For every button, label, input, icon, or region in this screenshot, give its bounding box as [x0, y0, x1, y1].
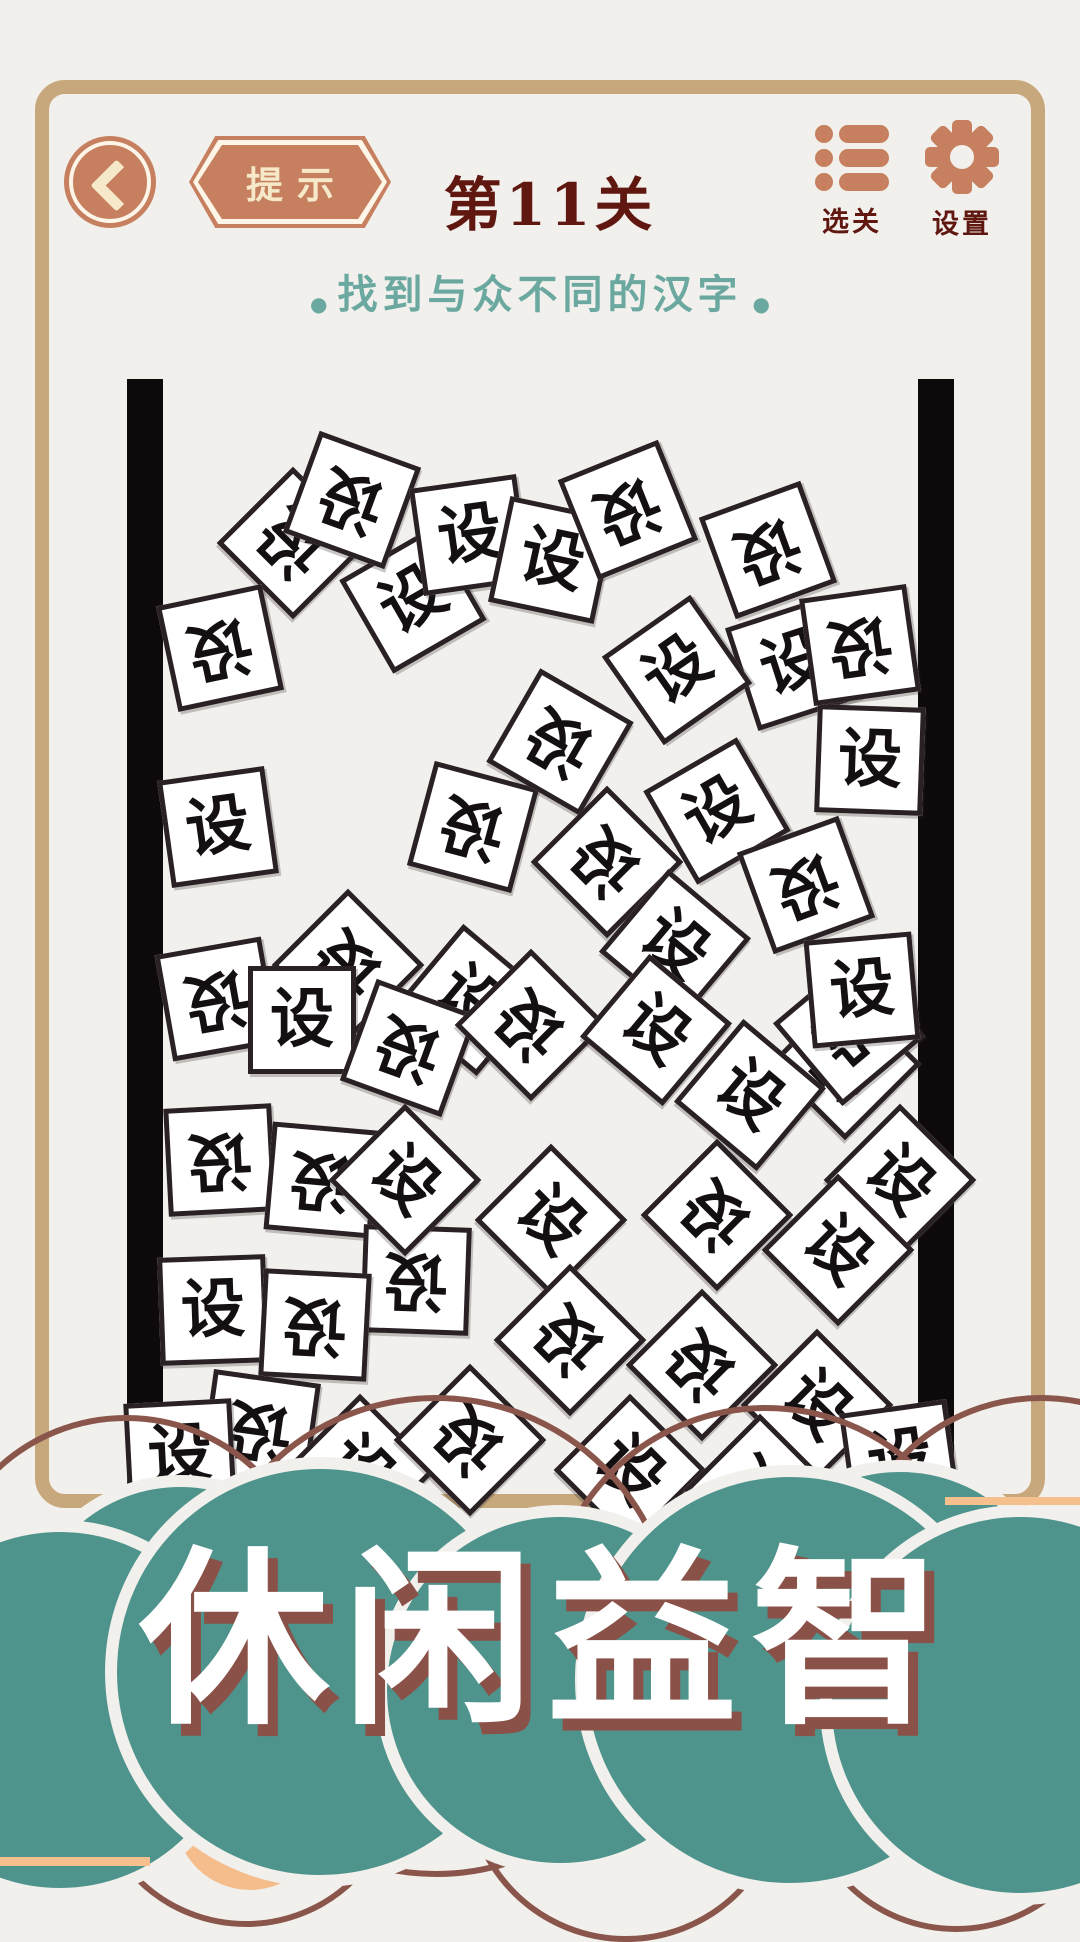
char-tile[interactable]: 设 — [248, 966, 356, 1074]
peach-line-right — [945, 1497, 1080, 1505]
char-tile[interactable]: 设 — [494, 1264, 647, 1417]
banner-title: 休闲益智 — [0, 1542, 1080, 1742]
char-tile[interactable]: 设 — [803, 931, 920, 1048]
tile-character: 设 — [611, 985, 701, 1075]
tile-character: 设 — [793, 1205, 884, 1296]
tile-character: 设 — [516, 698, 603, 785]
tile-character: 设 — [506, 1175, 597, 1266]
tile-character: 设 — [827, 955, 896, 1024]
tile-character: 设 — [368, 1007, 450, 1089]
char-tile[interactable]: 设 — [156, 584, 284, 712]
tile-character: 设 — [311, 459, 393, 541]
tile-character: 设 — [837, 727, 903, 793]
tile-character: 设 — [632, 625, 721, 714]
tile-character: 设 — [360, 1135, 451, 1226]
char-tile[interactable]: 设 — [157, 766, 279, 888]
char-tile[interactable]: 设 — [814, 704, 926, 816]
tile-character: 设 — [434, 499, 506, 571]
tile-character: 设 — [180, 962, 254, 1036]
tile-character: 设 — [383, 1247, 449, 1313]
tile-character: 设 — [765, 844, 847, 926]
tile-character: 设 — [270, 988, 334, 1052]
tile-character: 设 — [586, 468, 669, 551]
tile-character: 设 — [182, 791, 254, 863]
game-screen: { "header": { "hint_label": "提示", "level… — [0, 0, 1080, 1920]
tile-character: 设 — [672, 1170, 763, 1261]
tile-character: 设 — [727, 509, 809, 591]
tile-character: 设 — [562, 817, 653, 908]
tile-character: 设 — [824, 609, 896, 681]
tile-character: 设 — [281, 1291, 348, 1358]
peach-line-bottom-left — [0, 1857, 150, 1866]
tile-character: 设 — [705, 1050, 795, 1140]
tile-character: 设 — [434, 788, 512, 866]
char-tile[interactable]: 设 — [258, 1268, 372, 1382]
tile-character: 设 — [657, 1320, 748, 1411]
tile-character: 设 — [180, 1277, 246, 1343]
char-tile[interactable]: 设 — [799, 584, 921, 706]
tile-character: 设 — [525, 1295, 616, 1386]
tile-character: 设 — [186, 1126, 253, 1193]
char-tile[interactable]: 设 — [157, 1254, 269, 1366]
tile-character: 设 — [182, 610, 258, 686]
char-tile[interactable]: 设 — [475, 1144, 628, 1297]
char-tile[interactable]: 设 — [641, 1139, 794, 1292]
char-tile[interactable]: 设 — [163, 1103, 277, 1217]
tile-character: 设 — [673, 767, 760, 854]
tile-character: 设 — [486, 980, 577, 1071]
